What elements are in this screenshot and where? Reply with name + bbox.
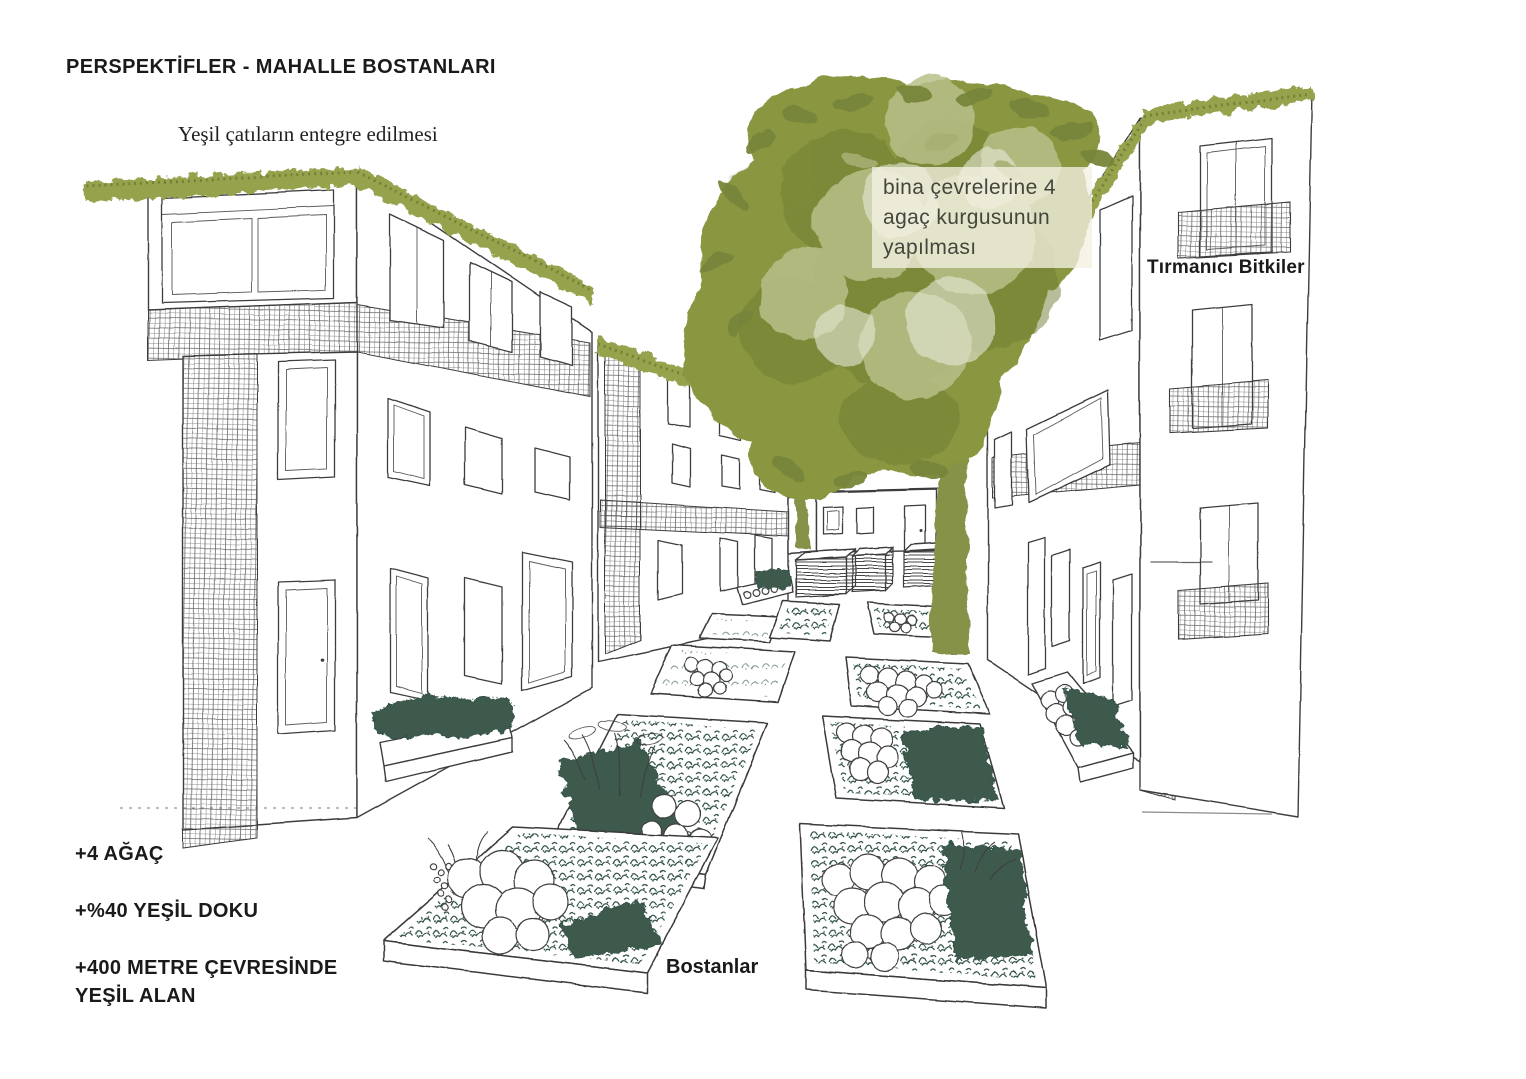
garden-bed: [800, 824, 1046, 1008]
stat-green-texture: +%40 YEŞİL DOKU: [75, 900, 258, 923]
stat-trees: +4 AĞAÇ: [75, 843, 164, 866]
garden-bed: [650, 645, 795, 702]
architectural-perspective-page: PERSPEKTİFLER - MAHALLE BOSTANLARI Yeşil…: [0, 0, 1526, 1079]
garden-bed: [770, 601, 840, 641]
left-apartment-building: [84, 166, 594, 848]
garden-bed: [846, 658, 990, 717]
tree-annotation-box: bina çevrelerine 4 agaç kurgusunun yapıl…: [872, 167, 1092, 268]
page-title: PERSPEKTİFLER - MAHALLE BOSTANLARI: [66, 56, 496, 79]
gardens-label: Bostanlar: [666, 956, 758, 979]
green-roof-annotation: Yeşil çatıların entegre edilmesi: [178, 122, 438, 147]
garden-bed: [700, 614, 780, 642]
garden-bed: [822, 716, 1004, 808]
climbing-plants-label: Tırmanıcı Bitkiler: [1147, 257, 1305, 279]
stat-green-area: +400 METRE ÇEVRESİNDE YEŞİL ALAN: [75, 955, 338, 1010]
